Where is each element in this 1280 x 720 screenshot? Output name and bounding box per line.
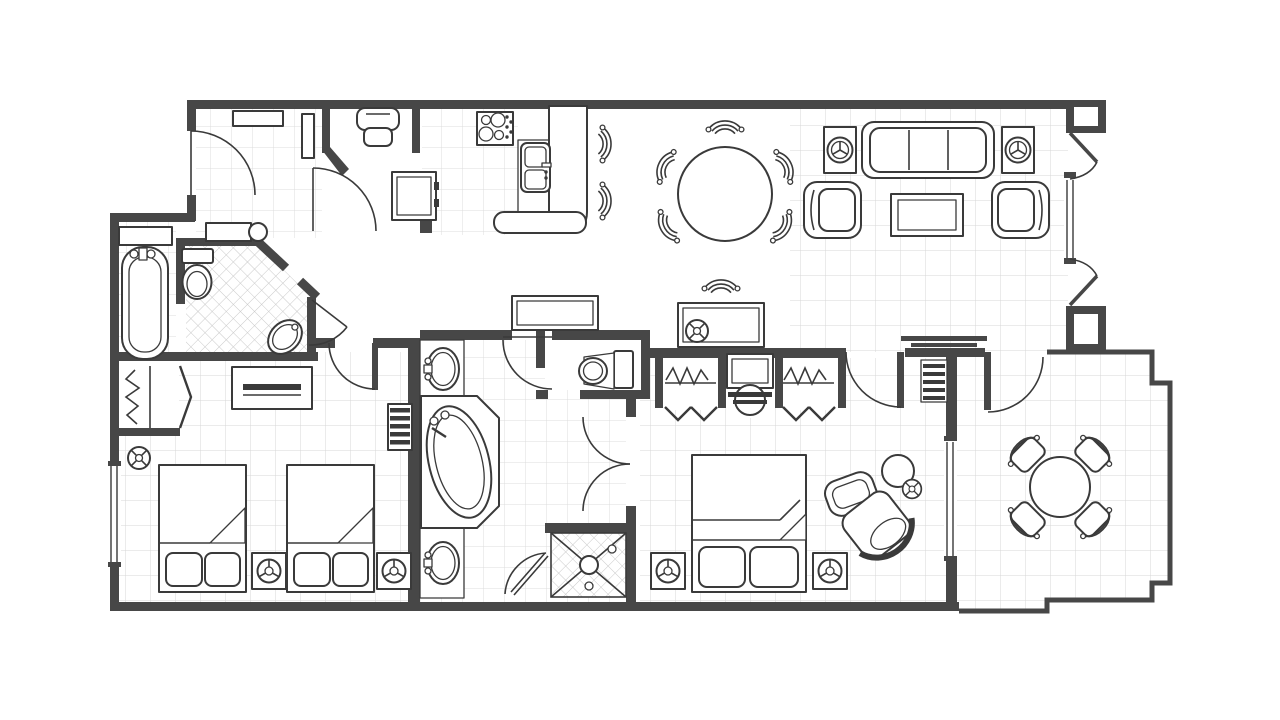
wall-shelf: [233, 111, 283, 126]
nightstand: [651, 553, 685, 589]
dining-chair: [652, 208, 682, 247]
column-bottom: [1066, 306, 1106, 352]
column-top: [1066, 100, 1106, 133]
guest-closet-floor: [119, 361, 179, 428]
armchair-right: [992, 182, 1049, 238]
mirror: [302, 114, 314, 158]
kitchen-sink: [521, 143, 551, 192]
bar-stool: [598, 125, 611, 163]
double-bed: [159, 465, 246, 592]
refrigerator: [392, 172, 439, 220]
master-closet1-floor: [663, 358, 718, 410]
nightstand: [813, 553, 847, 589]
hall-door: [313, 168, 376, 231]
washer: [357, 108, 399, 146]
dining-chair: [706, 121, 744, 134]
dining-chair: [651, 146, 678, 186]
double-bed: [287, 465, 374, 592]
ceiling-fan: [128, 447, 150, 469]
wc-toilet: [579, 351, 633, 389]
media-stand: [824, 127, 856, 173]
bar-stool: [598, 182, 611, 220]
garden-tub: [416, 396, 502, 528]
nightstand: [377, 553, 411, 589]
patio-table: [1030, 457, 1090, 517]
bath-shelf: [119, 227, 172, 245]
guest-toilet: [182, 249, 213, 299]
table-lamp: [903, 480, 922, 499]
dresser: [232, 367, 312, 409]
media-stand: [1002, 127, 1034, 173]
floor-plan-page: Entry Hall Laundry Closet Guest Bathroom: [0, 0, 1280, 720]
master-window: [944, 436, 957, 561]
writing-desk: [678, 280, 764, 347]
dining-table: [678, 147, 772, 241]
nightstand: [252, 553, 286, 589]
king-bed: [692, 455, 806, 592]
french-doors: [1064, 133, 1097, 305]
armchair-left: [804, 182, 861, 238]
guest-bedroom-window: [108, 461, 121, 567]
walk-in-shower: [551, 533, 626, 597]
floor-plan-drawing: Entry Hall Laundry Closet Guest Bathroom: [0, 0, 1280, 720]
coffee-table: [891, 194, 963, 236]
room-laundry: Laundry Closet: [357, 108, 399, 146]
cooktop: [477, 112, 513, 145]
master-closet2-floor: [783, 358, 838, 410]
luggage-bench: [206, 223, 267, 241]
console-table: [512, 296, 598, 330]
luggage-rack: [388, 404, 412, 450]
room-water-closet: Water Closet: [579, 351, 633, 389]
sofa: [862, 122, 994, 178]
bathtub: [122, 247, 168, 359]
